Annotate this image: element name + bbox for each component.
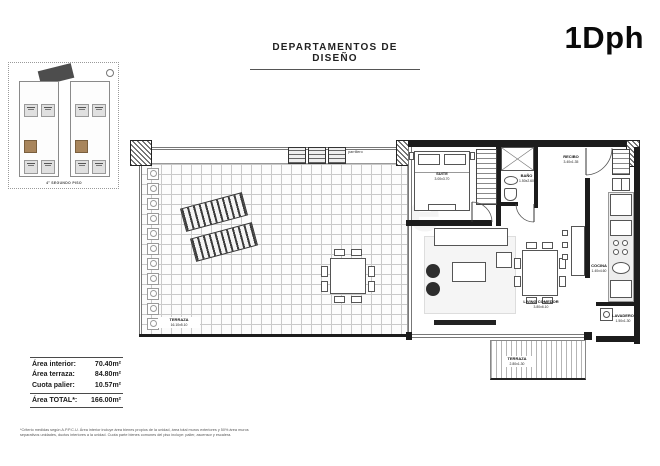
planter-icon — [147, 273, 159, 285]
planter-icon — [147, 228, 159, 240]
shower — [501, 147, 534, 171]
chair — [514, 258, 521, 269]
room-dims: 2.80x1.30 — [504, 362, 530, 366]
room-dims: 1.40x4.60 — [589, 269, 609, 273]
plan-sheet: DEPARTAMENTOS DE DISEÑO 1Dph meikle 4° S… — [0, 0, 660, 466]
footnote: *Criterio medidas según A.P.P.C.U. Área … — [20, 428, 266, 438]
pouf — [426, 264, 440, 278]
cooktop-burner — [613, 249, 619, 255]
area-value: 70.40m² — [95, 361, 121, 368]
entry-door-arc — [586, 148, 612, 175]
bed-bench — [428, 204, 456, 211]
chair — [321, 266, 328, 277]
planter-icon — [147, 183, 159, 195]
chair — [351, 296, 362, 303]
planter-icon — [147, 168, 159, 180]
cooktop-burner — [622, 249, 628, 255]
wall — [596, 302, 634, 306]
chair — [559, 276, 566, 287]
pillow — [444, 154, 466, 165]
room-label-lavadero: LAVADERO 1.50x1.30 — [612, 314, 634, 323]
room-label-living: LIVING COMEDOR 3.80x6.10 — [522, 300, 560, 309]
room-name: BAÑO — [521, 173, 533, 178]
area-label: Área interior: — [32, 361, 76, 368]
planter-icon — [147, 288, 159, 300]
stool — [562, 242, 568, 248]
pillow — [418, 154, 440, 165]
chair — [542, 242, 553, 249]
chair — [321, 281, 328, 292]
terrace-left-railing — [139, 163, 142, 336]
room-label-suite: SUITE 3.00x3.70 — [428, 172, 456, 181]
wall — [496, 202, 518, 206]
room-label-recibo: RECIBO 3.40x1.35 — [558, 155, 584, 164]
chair — [368, 281, 375, 292]
room-name: TERRAZA — [169, 317, 188, 322]
room-name: SUITE — [436, 171, 448, 176]
window — [408, 147, 412, 337]
area-label: Área terraza: — [32, 371, 75, 378]
chair — [526, 242, 537, 249]
wall — [585, 178, 590, 278]
room-name: TERRAZA — [507, 356, 526, 361]
terrace-table — [330, 258, 366, 294]
tv-bench — [434, 320, 496, 325]
entry-closet — [612, 149, 630, 175]
kitchen-sink — [612, 262, 630, 274]
dining-table — [522, 250, 558, 296]
chair — [334, 296, 345, 303]
planter-icon — [147, 243, 159, 255]
area-row: Cuota palier: 10.57m² — [30, 379, 123, 390]
window — [408, 334, 588, 338]
armchair — [496, 252, 512, 268]
room-dims: 3.00x3.70 — [428, 177, 456, 181]
room-dims: 16.10x5.10 — [160, 323, 198, 327]
bathroom-sink — [504, 176, 518, 185]
planter-icon — [147, 303, 159, 315]
room-label-terraza-main: TERRAZA 16.10x5.10 — [158, 317, 200, 328]
kitchen-bar — [571, 226, 585, 276]
room-dims: 3.80x6.10 — [522, 305, 560, 309]
chair — [351, 249, 362, 256]
grill-box — [328, 147, 346, 164]
room-label-bano: BAÑO 1.50x2.60 — [518, 174, 535, 183]
area-label: Cuota palier: — [32, 382, 75, 389]
chair — [334, 249, 345, 256]
oven — [610, 220, 632, 236]
wall — [406, 220, 492, 226]
wall — [408, 140, 640, 147]
fridge — [610, 194, 632, 216]
room-name: LAVADERO — [612, 313, 634, 318]
sofa — [434, 228, 508, 246]
room-label-cocina: COCINA 1.40x4.60 — [589, 264, 609, 273]
coffee-table — [452, 262, 486, 282]
grill-box — [288, 147, 306, 164]
cooktop-burner — [622, 240, 628, 246]
room-name: COCINA — [591, 263, 607, 268]
toilet — [504, 188, 517, 201]
chair — [368, 266, 375, 277]
planter-icon — [147, 258, 159, 270]
room-dims: 1.50x2.60 — [518, 179, 535, 183]
area-value: 166.00m² — [91, 397, 121, 404]
area-value: 10.57m² — [95, 382, 121, 389]
terrace-deck — [140, 163, 408, 336]
nightstand — [470, 152, 475, 160]
grill-box — [308, 147, 326, 164]
room-name: LIVING COMEDOR — [523, 299, 558, 304]
room-name: RECIBO — [563, 154, 579, 159]
wardrobe — [476, 149, 497, 205]
planter-icon — [147, 198, 159, 210]
planter-icon — [147, 213, 159, 225]
room-label-terraza-small: TERRAZA 2.80x1.30 — [502, 356, 532, 367]
room-dims: 1.50x1.30 — [612, 319, 634, 323]
wall — [406, 332, 412, 340]
suite-door-arc — [472, 202, 492, 222]
stool — [562, 254, 568, 260]
wall-pier — [130, 140, 152, 166]
area-total-row: Área TOTAL*: 166.00m² — [30, 393, 123, 408]
cabinet — [612, 178, 630, 191]
terrace-bottom-railing — [139, 334, 411, 337]
wall — [584, 332, 592, 340]
stool — [562, 230, 568, 236]
wall — [596, 336, 640, 342]
pouf — [426, 282, 440, 296]
area-row: Área terraza: 84.80m² — [30, 369, 123, 380]
cooktop-burner — [613, 240, 619, 246]
bath-door-arc — [516, 204, 534, 222]
area-table: Área interior: 70.40m² Área terraza: 84.… — [30, 357, 123, 408]
parrillero-label: parrillero — [348, 150, 380, 154]
room-dims: 3.40x1.35 — [558, 160, 584, 164]
wall — [634, 147, 640, 344]
area-row: Área interior: 70.40m² — [30, 358, 123, 369]
area-value: 84.80m² — [95, 371, 121, 378]
chair — [514, 276, 521, 287]
area-label: Área TOTAL*: — [32, 397, 77, 404]
cabinet — [610, 280, 632, 298]
nightstand — [409, 152, 414, 160]
